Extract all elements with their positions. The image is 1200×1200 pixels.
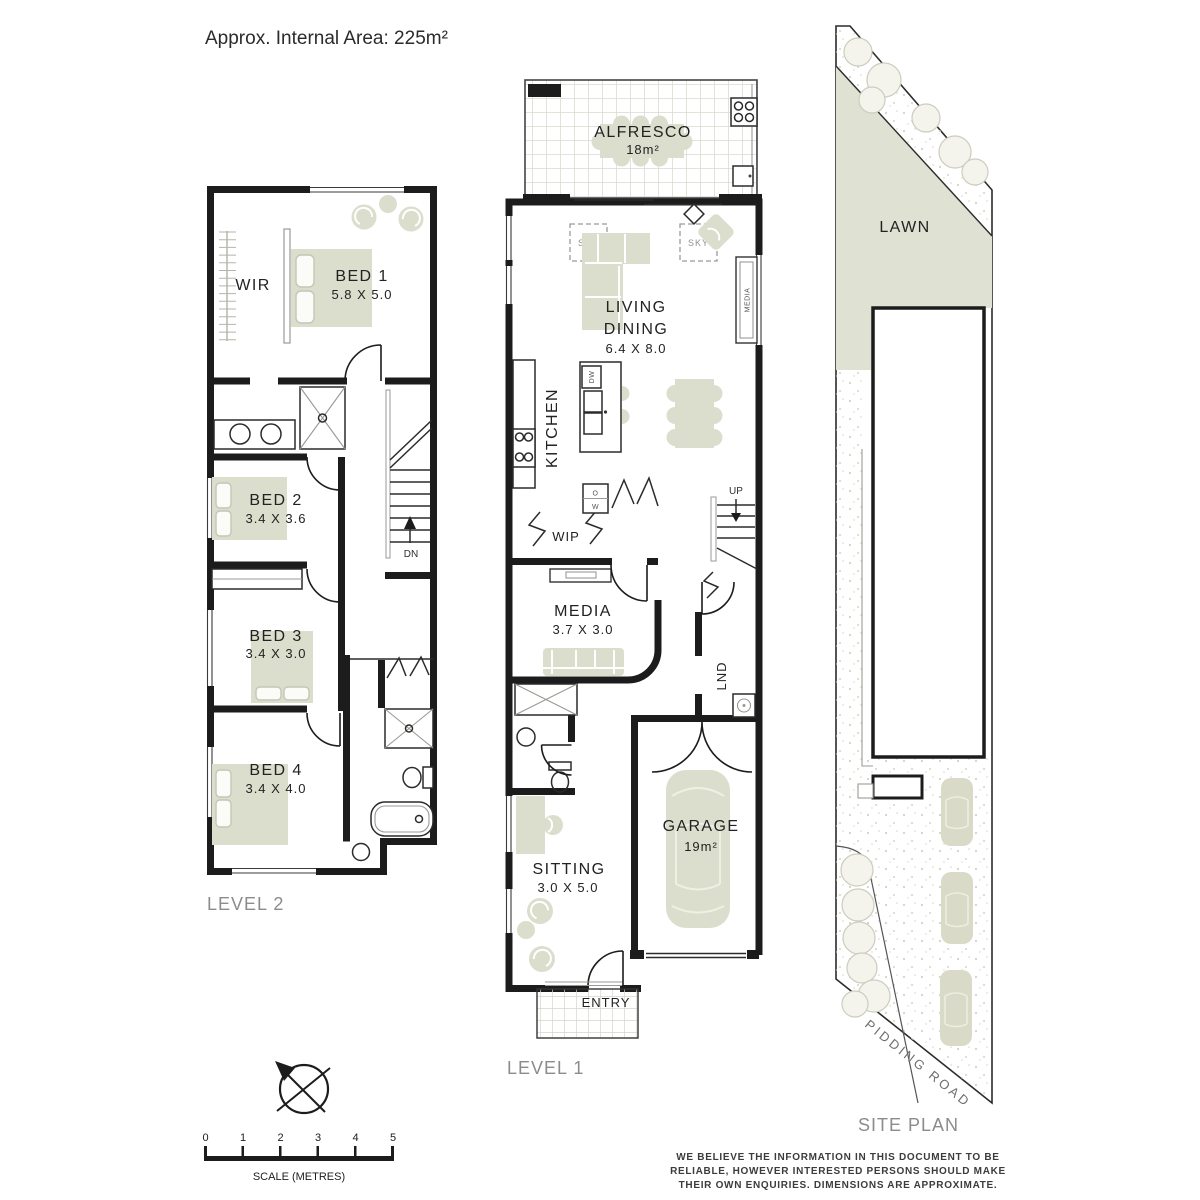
room-label-wip: WIP <box>552 529 580 544</box>
bed1-icon <box>284 229 372 343</box>
lawn-label: LAWN <box>879 219 930 236</box>
media-unit-living: MEDIA <box>736 257 757 343</box>
room-label-bed1: BED 1 <box>335 268 388 285</box>
disclaimer: WE BELIEVE THE INFORMATION IN THIS DOCUM… <box>670 1152 1006 1191</box>
room-label-sitting: SITTING <box>533 861 606 878</box>
room-label-garage: GARAGE <box>663 818 740 835</box>
wall-oven-label: W <box>592 504 599 511</box>
room-dims-sitting: 3.0 X 5.0 <box>537 880 598 895</box>
room-label-bed4: BED 4 <box>249 762 302 779</box>
room-label-laundry: LND <box>714 661 729 690</box>
scale-bar: 0 1 2 3 4 5 SCALE (METRES) <box>202 1132 396 1183</box>
room-area-alfresco: 18m² <box>626 142 660 157</box>
stairs-up <box>704 497 757 598</box>
scale-tick-3: 3 <box>315 1132 321 1144</box>
kitchen-area: DW <box>513 360 630 488</box>
bed1-door <box>345 345 381 381</box>
level1-plan: ALFRESCO 18m² <box>504 80 763 1038</box>
alfresco-area: ALFRESCO 18m² <box>525 80 757 198</box>
floorplan-svg: Approx. Internal Area: 225m² WIR <box>0 0 1200 1200</box>
bed4-door <box>307 713 340 746</box>
level2-label: LEVEL 2 <box>207 894 284 914</box>
scale-label: SCALE (METRES) <box>253 1171 345 1183</box>
disclaimer-line1: WE BELIEVE THE INFORMATION IN THIS DOCUM… <box>676 1152 999 1163</box>
oven-label: O <box>593 491 599 498</box>
dining-table-icon <box>667 379 723 448</box>
bed1-sitting-nook <box>347 195 428 236</box>
room-label-dining: DINING <box>604 321 668 338</box>
room-dims-media: 3.7 X 3.0 <box>552 622 613 637</box>
wip-area: O W <box>529 478 658 546</box>
level2-ensuite <box>214 387 345 449</box>
scale-tick-4: 4 <box>352 1132 358 1144</box>
room-label-wir: WIR <box>235 277 270 294</box>
scale-tick-1: 1 <box>240 1132 246 1144</box>
room-dims-living-dining: 6.4 X 8.0 <box>605 341 666 356</box>
laundry-area <box>702 582 755 717</box>
room-label-kitchen: KITCHEN <box>544 388 561 468</box>
level2-plan: WIR BED 1 5.8 X 5.0 <box>205 185 434 875</box>
disclaimer-line3: THEIR OWN ENQUIRIES. DIMENSIONS ARE APPR… <box>679 1180 998 1191</box>
floorplan-page: Approx. Internal Area: 225m² WIR <box>0 0 1200 1200</box>
side-table-icon <box>684 204 704 224</box>
site-porch <box>873 776 922 798</box>
page-title: Approx. Internal Area: 225m² <box>205 28 448 49</box>
room-label-media: MEDIA <box>554 603 612 620</box>
site-plan-label: SITE PLAN <box>858 1115 959 1135</box>
room-dims-bed3: 3.4 X 3.0 <box>245 646 306 661</box>
level2-bathroom <box>353 657 434 861</box>
compass-icon <box>275 1061 330 1113</box>
room-label-bed2: BED 2 <box>249 492 302 509</box>
disclaimer-line2: RELIABLE, HOWEVER INTERESTED PERSONS SHO… <box>670 1166 1006 1177</box>
media-door <box>611 565 647 601</box>
scale-tick-0: 0 <box>202 1132 208 1144</box>
powder-room <box>515 684 577 792</box>
bed3-door <box>307 569 340 602</box>
garage-door <box>630 950 759 959</box>
stairs-up-label: UP <box>729 486 743 497</box>
room-label-entry: ENTRY <box>582 995 631 1010</box>
scale-tick-5: 5 <box>390 1132 396 1144</box>
room-dims-bed4: 3.4 X 4.0 <box>245 781 306 796</box>
site-plan: LAWN PIDDING ROAD <box>836 26 992 1110</box>
bed2-door <box>307 457 340 490</box>
dishwasher-label: DW <box>589 371 596 384</box>
stairs-dn-label: DN <box>404 549 418 560</box>
room-label-living: LIVING <box>606 299 667 316</box>
room-dims-bed2: 3.4 X 3.6 <box>245 511 306 526</box>
level1-label: LEVEL 1 <box>507 1058 584 1078</box>
room-label-alfresco: ALFRESCO <box>594 124 691 141</box>
room-area-garage: 19m² <box>684 839 718 854</box>
scale-tick-2: 2 <box>277 1132 283 1144</box>
stairs-down <box>386 390 432 558</box>
wir-hanging-rail-icon <box>219 231 236 341</box>
house-footprint <box>873 308 984 757</box>
room-dims-bed1: 5.8 X 5.0 <box>331 287 392 302</box>
room-label-bed3: BED 3 <box>249 628 302 645</box>
parked-car-icons <box>940 778 973 1046</box>
media-unit-label: MEDIA <box>745 288 752 313</box>
bed3-wardrobe-icon <box>212 569 302 589</box>
